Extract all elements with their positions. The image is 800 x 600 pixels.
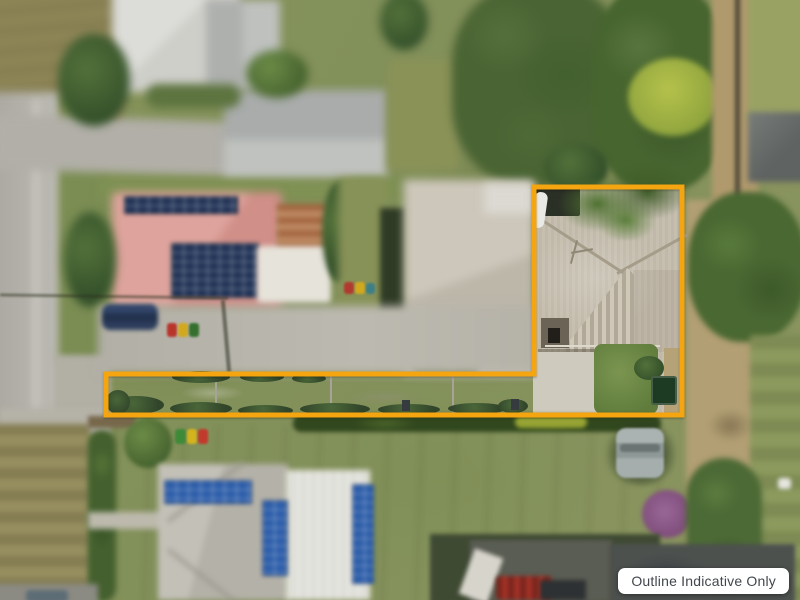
- property-outline-polygon: [106, 187, 682, 415]
- outline-indicative-badge: Outline Indicative Only: [618, 568, 789, 594]
- property-outline-overlay: [0, 0, 800, 600]
- aerial-photo: Outline Indicative Only: [0, 0, 800, 600]
